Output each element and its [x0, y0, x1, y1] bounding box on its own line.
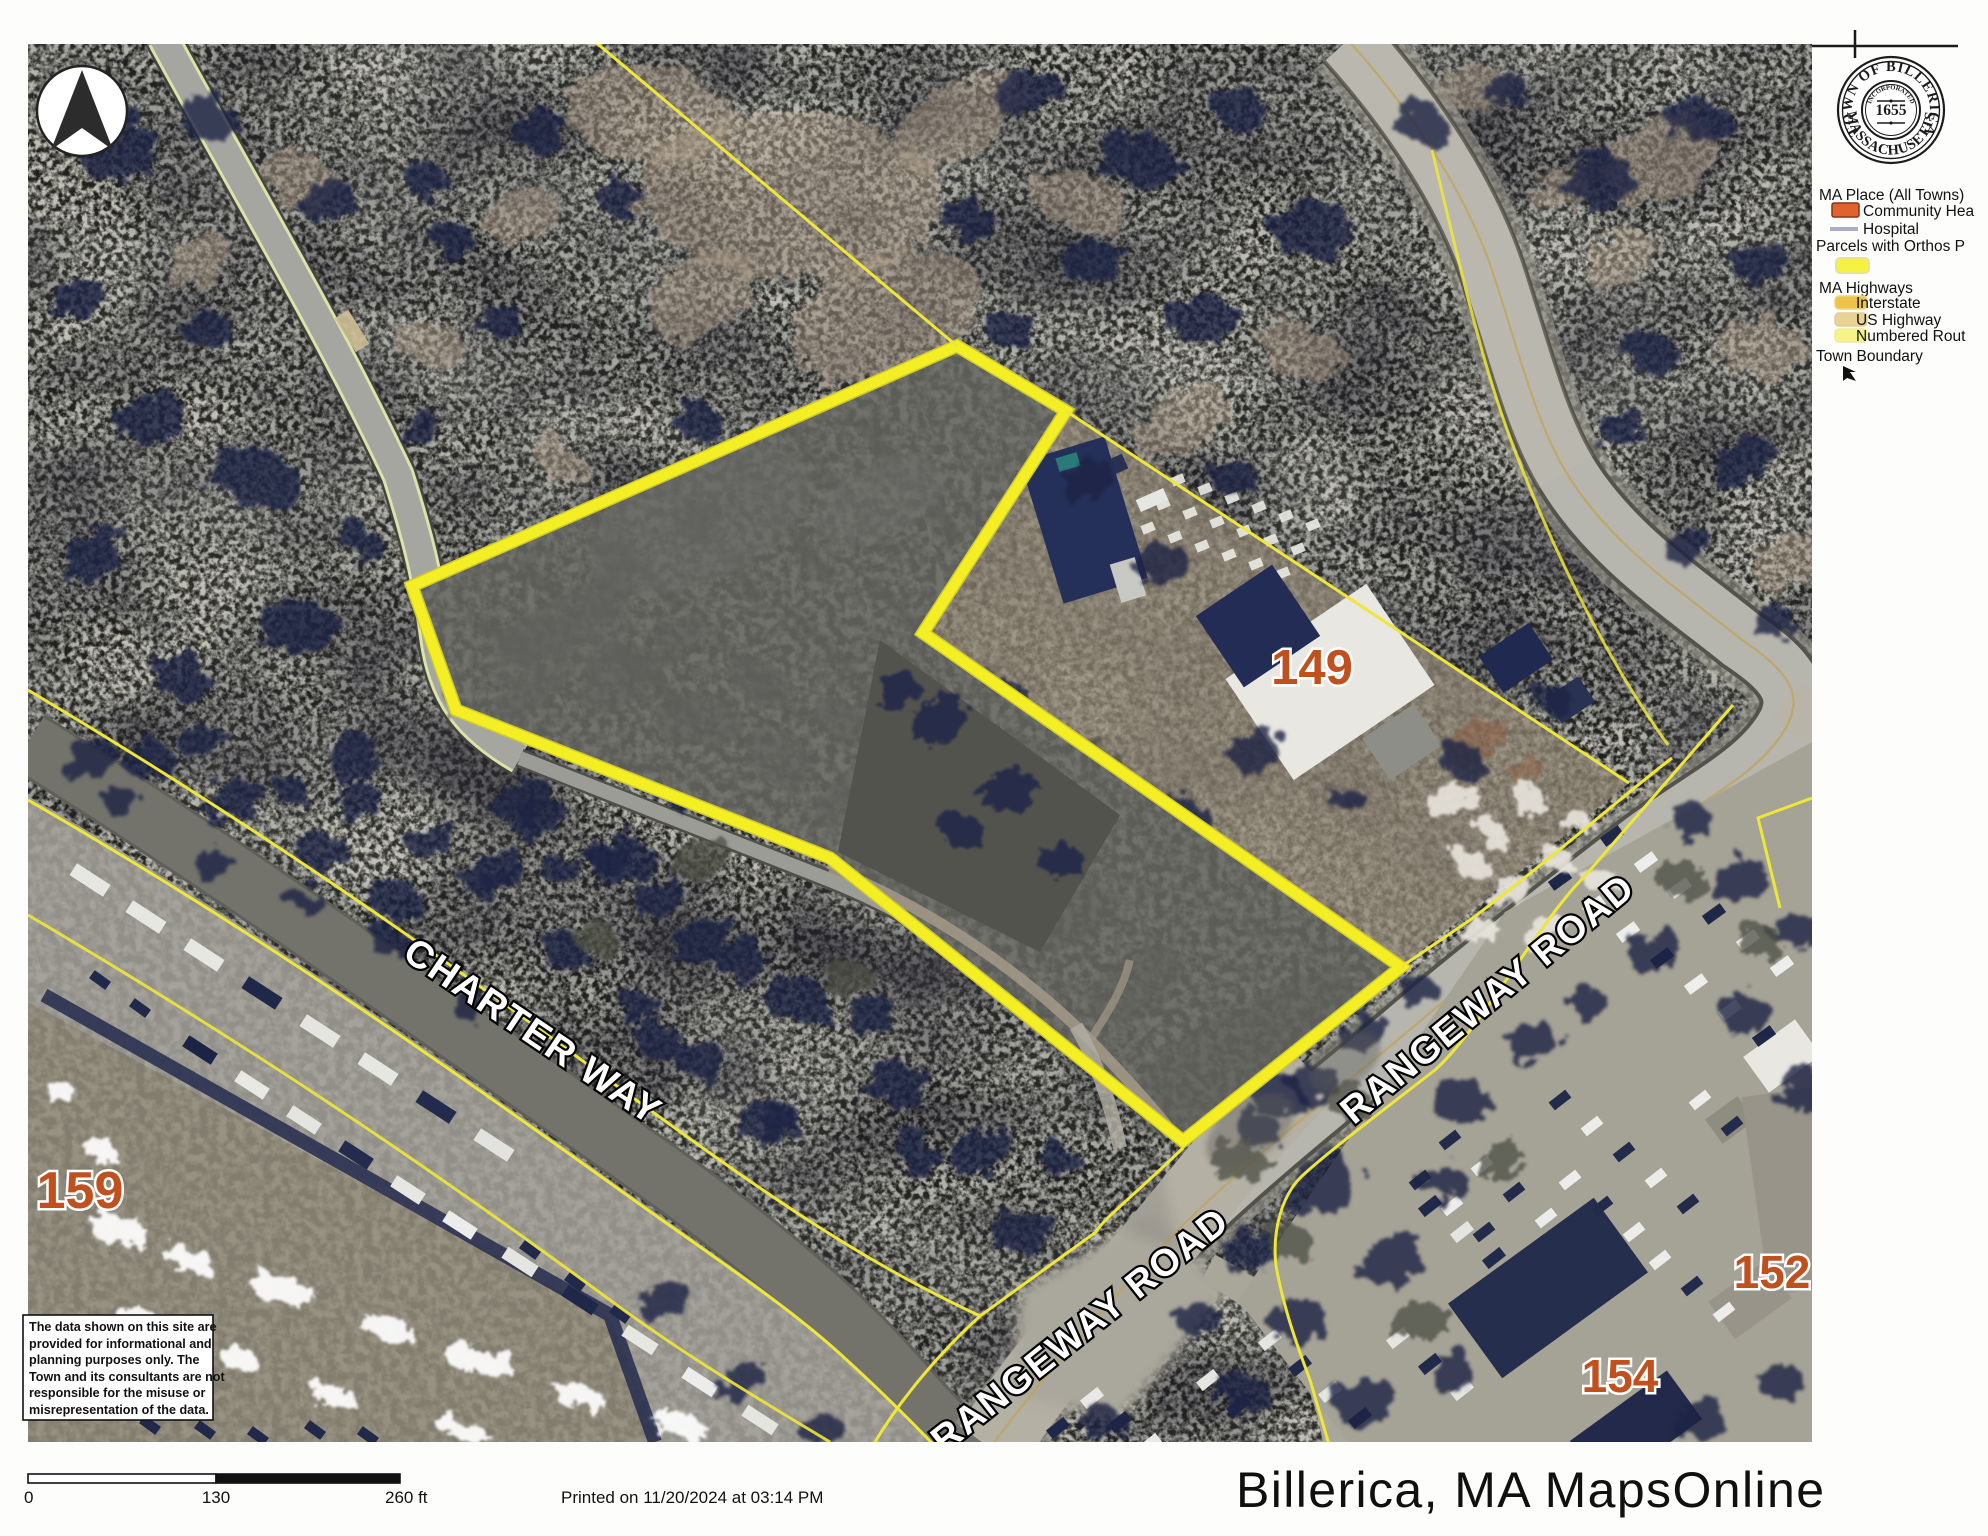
svg-text:Community Hea: Community Hea — [1863, 203, 1974, 220]
svg-text:159: 159 — [37, 1162, 124, 1220]
svg-text:Parcels with Orthos P: Parcels with Orthos P — [1816, 238, 1965, 255]
svg-text:0: 0 — [24, 1488, 33, 1507]
svg-text:provided for informational and: provided for informational and — [29, 1337, 212, 1351]
svg-text:1655: 1655 — [1876, 102, 1907, 119]
svg-text:Printed on 11/20/2024 at 03:1: Printed on 11/20/2024 at 03:14 PM — [561, 1488, 823, 1507]
svg-text:The data shown on this site ar: The data shown on this site are — [29, 1320, 217, 1334]
svg-text:Numbered Rout: Numbered Rout — [1856, 328, 1966, 345]
svg-text:130: 130 — [202, 1488, 230, 1507]
svg-text:154: 154 — [1582, 1350, 1659, 1402]
svg-text:US Highway: US Highway — [1856, 312, 1942, 329]
svg-text:misrepresentation of the data.: misrepresentation of the data. — [29, 1403, 209, 1417]
svg-text:Billerica, MA MapsOnline: Billerica, MA MapsOnline — [1236, 1462, 1824, 1518]
svg-text:responsible for the misuse or: responsible for the misuse or — [29, 1386, 205, 1400]
svg-text:149: 149 — [1271, 641, 1353, 695]
svg-text:Town Boundary: Town Boundary — [1816, 348, 1923, 365]
svg-text:260 ft: 260 ft — [385, 1488, 428, 1507]
svg-text:Town and its consultants are n: Town and its consultants are not — [29, 1370, 225, 1384]
svg-text:MA Place (All Towns): MA Place (All Towns) — [1819, 187, 1964, 204]
svg-text:Hospital: Hospital — [1863, 221, 1919, 238]
svg-text:Interstate: Interstate — [1856, 295, 1921, 312]
svg-text:152: 152 — [1734, 1246, 1811, 1298]
svg-text:planning purposes only. The: planning purposes only. The — [29, 1353, 200, 1367]
